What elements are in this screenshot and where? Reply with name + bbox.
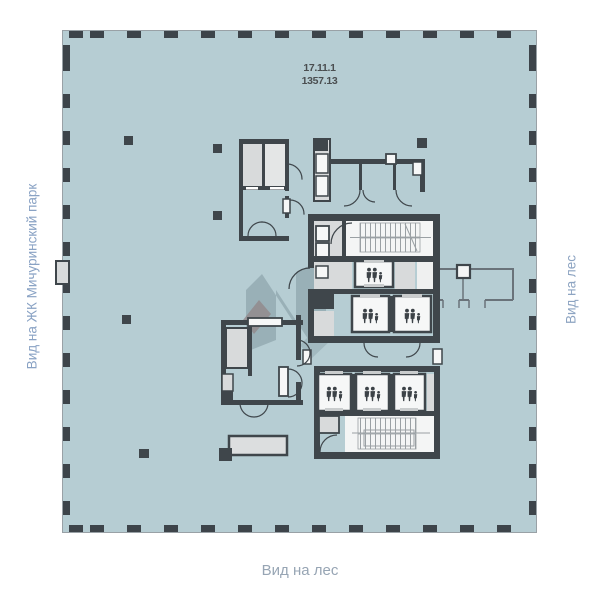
view-label-right: Вид на лес [564,210,579,370]
view-label-bottom: Вид на лес [245,562,355,579]
floorplan-page: 17.11.1 1357.13 Вид на ЖК Мичуринский па… [0,0,600,615]
area-value: 1357.13 [272,75,367,88]
plan-title: 17.11.1 1357.13 [272,62,367,88]
facade-mullions-right [529,35,536,528]
facade-mullions-left [63,35,70,528]
floor-plan-area [62,30,537,533]
facade-mullions-bottom [67,525,532,532]
facade-mullions-top [67,31,532,38]
view-label-left: Вид на ЖК Мичуринский парк [25,127,40,427]
unit-number: 17.11.1 [272,62,367,75]
